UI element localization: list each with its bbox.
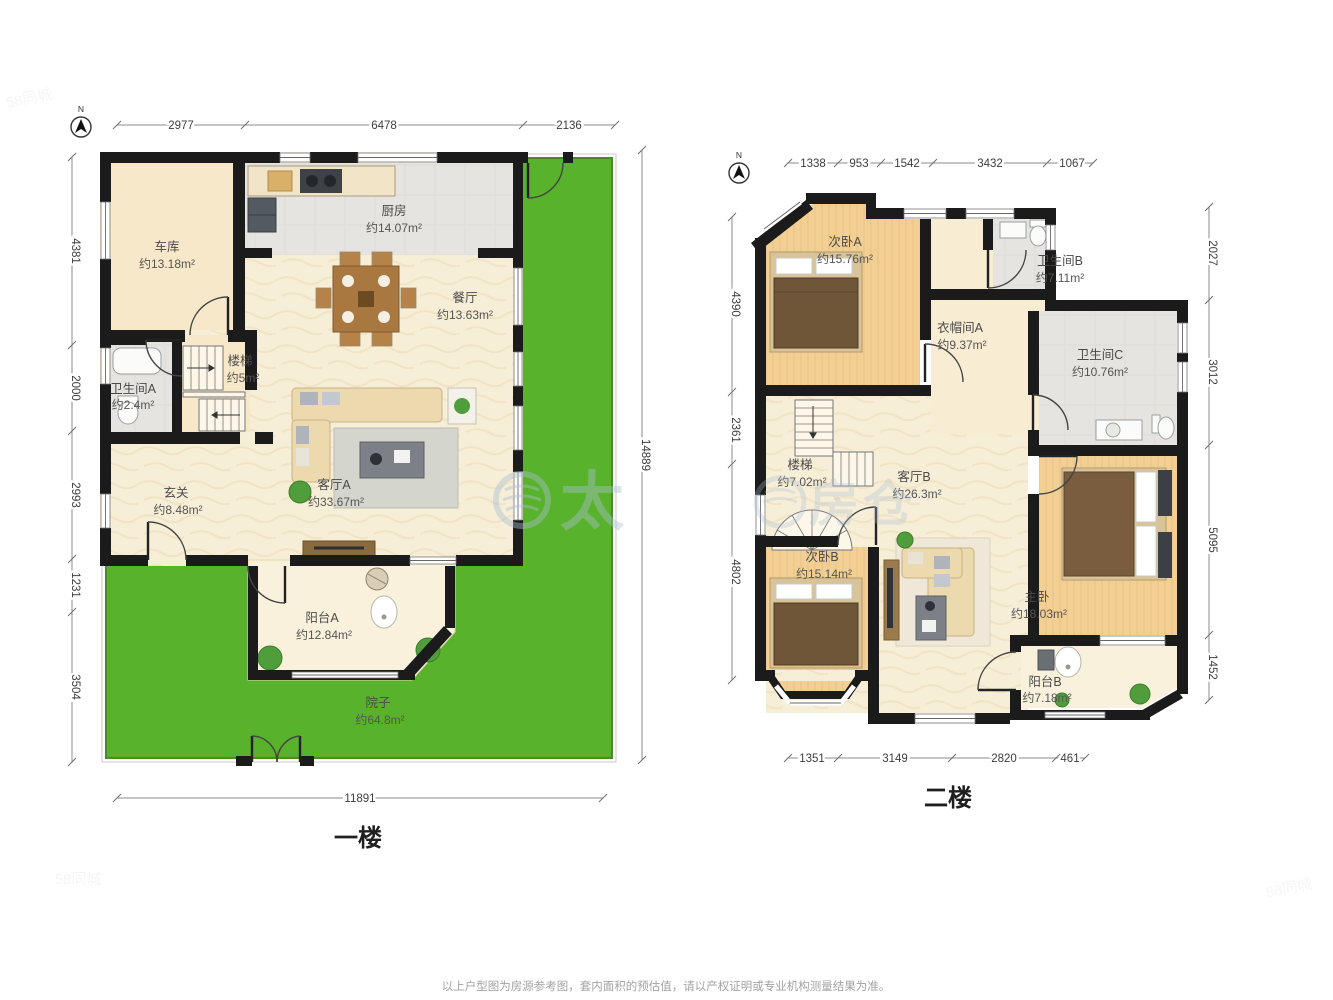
dim-left-5: 3504	[69, 674, 81, 700]
room-area: 约12.84m²	[296, 627, 352, 642]
room-area: 约5m²	[227, 370, 260, 385]
room-area: 约9.37m²	[937, 337, 986, 352]
dim-right-2: 3012	[1206, 359, 1218, 385]
dim-bottom-3: 2820	[991, 753, 1017, 765]
room-name: 卫生间A	[110, 382, 157, 396]
room-area: 约64.8m²	[355, 712, 404, 727]
watermark-char: 仓	[863, 476, 914, 532]
dim-left-2: 2361	[729, 417, 741, 443]
room-area: 约7.11m²	[1036, 270, 1084, 285]
room-name: 卫生间B	[1037, 254, 1083, 268]
watermark-char: 房	[809, 476, 859, 532]
floor1-title: 一楼	[334, 825, 382, 852]
room-name: 阳台B	[1028, 674, 1061, 689]
room-area: 约13.18m²	[139, 256, 195, 271]
room-name: 主卧	[1024, 590, 1049, 604]
room-area: 约18.03m²	[1011, 606, 1067, 621]
dim-bottom-1: 1351	[799, 753, 825, 765]
room-name: 车库	[154, 239, 179, 254]
room-name: 楼梯	[227, 353, 252, 368]
corner-watermark-text: 58同城	[4, 85, 53, 111]
master-bed-furniture	[1062, 468, 1172, 580]
disclaimer-text: 以上户型图为房源参考图，套内面积的预估值，请以产权证明或专业机构测量结果为准。	[442, 979, 891, 993]
compass-icon: N	[729, 150, 749, 183]
floorplan-canvas: 58同城 58同城 58同城	[0, 0, 1333, 1000]
room-name: 阳台A	[305, 610, 339, 625]
room-name: 衣帽间A	[937, 320, 984, 335]
room-name: 院子	[365, 696, 390, 710]
room-area: 约10.76m²	[1072, 364, 1128, 379]
room-name: 客厅A	[317, 477, 351, 492]
dim-top-3: 1542	[894, 158, 920, 170]
dim-left-1: 4381	[69, 238, 81, 264]
floor2-plan: 次卧A 约15.76m² 卫生间B 约7.11m² 衣帽间A 约9.37m² 卫…	[728, 150, 1218, 812]
dim-right-1: 14889	[639, 439, 651, 471]
dim-top-4: 3432	[977, 158, 1003, 170]
dim-left-1: 4390	[729, 291, 741, 317]
room-area: 约15.76m²	[817, 251, 873, 266]
living-b-furniture	[884, 532, 990, 646]
dim-top-1: 2977	[168, 120, 194, 132]
room-area: 约14.07m²	[366, 220, 422, 235]
dim-right-4: 1452	[1206, 654, 1218, 680]
dim-left-3: 2993	[69, 482, 81, 508]
watermark-char: 太	[560, 466, 624, 538]
compass-n-label: N	[78, 104, 84, 114]
room-area: 约2.4m²	[112, 397, 155, 412]
compass-n-label: N	[736, 150, 742, 160]
dim-top-3: 2136	[556, 120, 582, 132]
room-area: 约33.67m²	[308, 494, 364, 509]
dim-top-1: 1338	[800, 158, 826, 170]
floorplan-page: 58同城 58同城 58同城	[0, 0, 1333, 1000]
dim-right-3: 5095	[1206, 527, 1218, 553]
bed-a-furniture	[770, 252, 862, 352]
dim-top-2: 953	[849, 158, 868, 170]
dim-bottom-2: 3149	[882, 753, 908, 765]
dim-right-1: 2027	[1206, 240, 1218, 266]
floor2-title: 二楼	[924, 785, 972, 812]
dim-top-5: 1067	[1059, 158, 1085, 170]
room-area: 约13.63m²	[437, 307, 493, 322]
room-area: 约7.18m²	[1022, 690, 1071, 705]
dim-top-2: 6478	[371, 120, 397, 132]
room-name: 厨房	[381, 203, 406, 218]
dim-bottom-4: 461	[1060, 753, 1079, 765]
room-name: 次卧A	[828, 235, 862, 249]
dim-left-4: 1231	[69, 572, 81, 598]
corner-watermark-text: 58同城	[1264, 875, 1313, 901]
dim-bottom-1: 11891	[344, 793, 375, 805]
dim-left-2: 2000	[69, 375, 81, 401]
room-name: 卫生间C	[1077, 348, 1124, 362]
room-name: 玄关	[163, 485, 188, 500]
bed-b-furniture	[770, 578, 862, 668]
room-name: 楼梯	[787, 457, 812, 472]
corner-watermark-text: 58同城	[55, 871, 102, 888]
compass-icon: N	[71, 104, 91, 137]
room-area: 约8.48m²	[153, 502, 202, 517]
dim-left-3: 4802	[729, 559, 741, 585]
room-area: 约15.14m²	[796, 566, 852, 581]
room-name: 次卧B	[805, 550, 838, 564]
room-name: 餐厅	[452, 290, 477, 305]
